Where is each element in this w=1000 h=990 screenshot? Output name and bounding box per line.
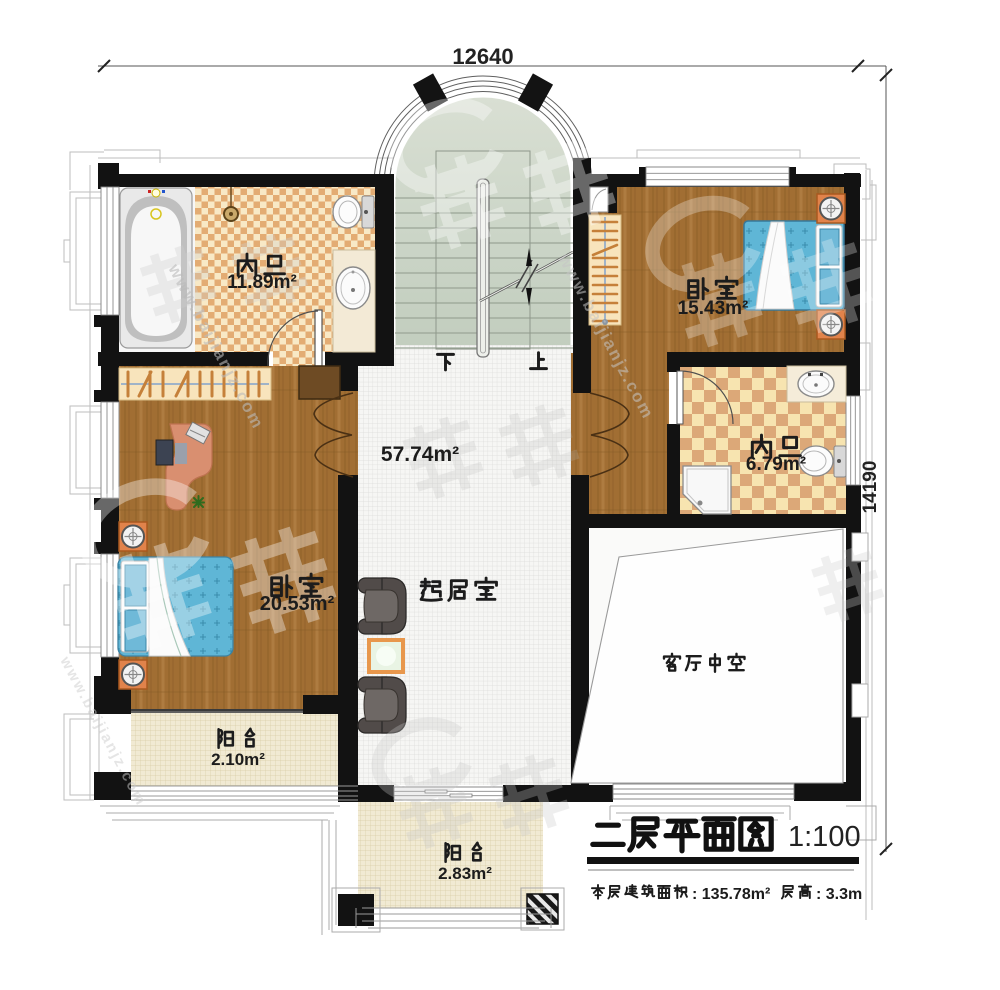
svg-text:2.10m²: 2.10m² [211, 750, 265, 769]
svg-text:14190: 14190 [860, 461, 881, 514]
svg-text:: 135.78m²: : 135.78m² [692, 886, 770, 903]
svg-text:15.43m²: 15.43m² [678, 298, 749, 319]
svg-text:57.74m²: 57.74m² [381, 443, 459, 466]
svg-text:12640: 12640 [452, 44, 513, 69]
svg-text:20.53m²: 20.53m² [260, 593, 335, 615]
svg-text:6.79m²: 6.79m² [746, 454, 806, 475]
svg-text:11.89m²: 11.89m² [227, 272, 297, 293]
svg-text:: 3.3m: : 3.3m [816, 886, 862, 903]
svg-text:2.83m²: 2.83m² [438, 864, 492, 883]
svg-text:1:100: 1:100 [788, 821, 861, 853]
